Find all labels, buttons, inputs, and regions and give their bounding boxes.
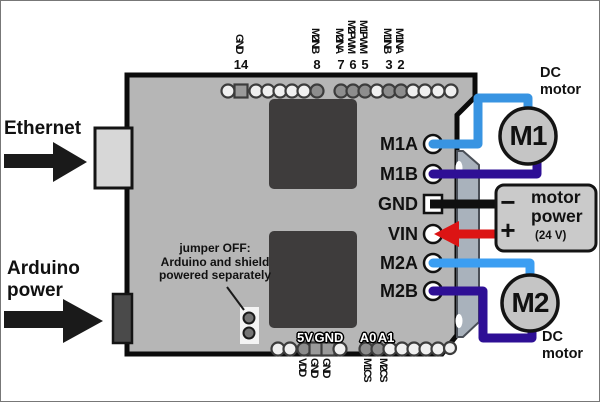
bottom-pin-name-m1cs: M1CS <box>361 358 372 381</box>
ethernet-arrow-icon <box>4 142 87 182</box>
bottom-pin-name-m2cs: M2CS <box>377 358 388 381</box>
bottom-pin-name-gnd2: GND <box>320 358 331 376</box>
top-pin-number-14: 14 <box>229 57 253 72</box>
motor-shield-wiring-diagram: Ethernet Arduino power GND M2INB M2INA M… <box>0 0 600 402</box>
strip-hole-bottom <box>456 314 463 328</box>
top-pin-name-m2pwm: M2PWM <box>345 20 356 52</box>
ethernet-jack <box>95 128 132 188</box>
top-pin-name-m2ina: M2INA <box>333 28 344 52</box>
right-pin-label-gnd: GND <box>326 193 418 215</box>
board-label-a1: A1 <box>364 331 408 344</box>
right-pin-label-vin: VIN <box>326 223 418 245</box>
dc-motor-caption-top-line2: motor <box>540 82 581 99</box>
top-pin-name-m1pwm: M1PWM <box>357 20 368 52</box>
motor-power-title-line1: motor <box>531 188 581 207</box>
right-pin-label-m2a: M2A <box>326 252 418 274</box>
top-pin-number-8: 8 <box>305 57 329 72</box>
top-header-pads <box>222 85 458 98</box>
dc-motor-caption-bottom: DC motor <box>542 329 583 363</box>
bottom-pin-name-gnd1: GND <box>308 358 319 376</box>
bottom-pin-name-vdd: VDD <box>296 358 307 375</box>
dc-motor-caption-top: DC motor <box>540 65 581 99</box>
ethernet-label: Ethernet <box>4 118 81 140</box>
motor-power-minus-sign: − <box>498 189 518 215</box>
jumper-note: jumper OFF: Arduino and shield powered s… <box>157 242 273 283</box>
motor-power-plus-sign: + <box>498 217 518 243</box>
top-pin-number-5: 5 <box>353 57 377 72</box>
jumper-pin <box>244 328 255 339</box>
motor-m2-label: M2 <box>498 288 562 318</box>
arduino-power-arrow-icon <box>4 299 103 343</box>
jumper-note-line3: powered separately <box>157 269 273 283</box>
dc-motor-caption-top-line1: DC <box>540 65 581 82</box>
top-pin-number-2: 2 <box>389 57 413 72</box>
top-pin-name-m1ina: M1INA <box>393 28 404 52</box>
jumper-pin <box>244 313 255 324</box>
arduino-power-label-line2: power <box>7 280 80 302</box>
dc-motor-caption-bottom-line2: motor <box>542 346 583 363</box>
arduino-power-label-line1: Arduino <box>7 258 80 280</box>
dc-motor-caption-bottom-line1: DC <box>542 329 583 346</box>
power-jack <box>113 294 132 343</box>
board-label-gnd: GND <box>307 331 351 344</box>
right-pin-label-m1a: M1A <box>326 133 418 155</box>
right-pin-label-m2b: M2B <box>326 280 418 302</box>
motor-power-title-line2: power <box>531 207 583 226</box>
jumper-note-line1: jumper OFF: <box>157 242 273 256</box>
jumper-note-line2: Arduino and shield <box>157 256 273 270</box>
terminal-block-strip <box>457 151 479 337</box>
motor-power-voltage: (24 V) <box>535 230 566 242</box>
top-pin-name-m2inb: M2INB <box>309 28 320 52</box>
motor-m1-label: M1 <box>496 121 560 151</box>
arduino-power-label: Arduino power <box>7 258 80 302</box>
top-pin-name-gnd: GND <box>233 34 244 52</box>
top-pin-name-m1inb: M1INB <box>381 28 392 52</box>
right-pin-label-m1b: M1B <box>326 163 418 185</box>
